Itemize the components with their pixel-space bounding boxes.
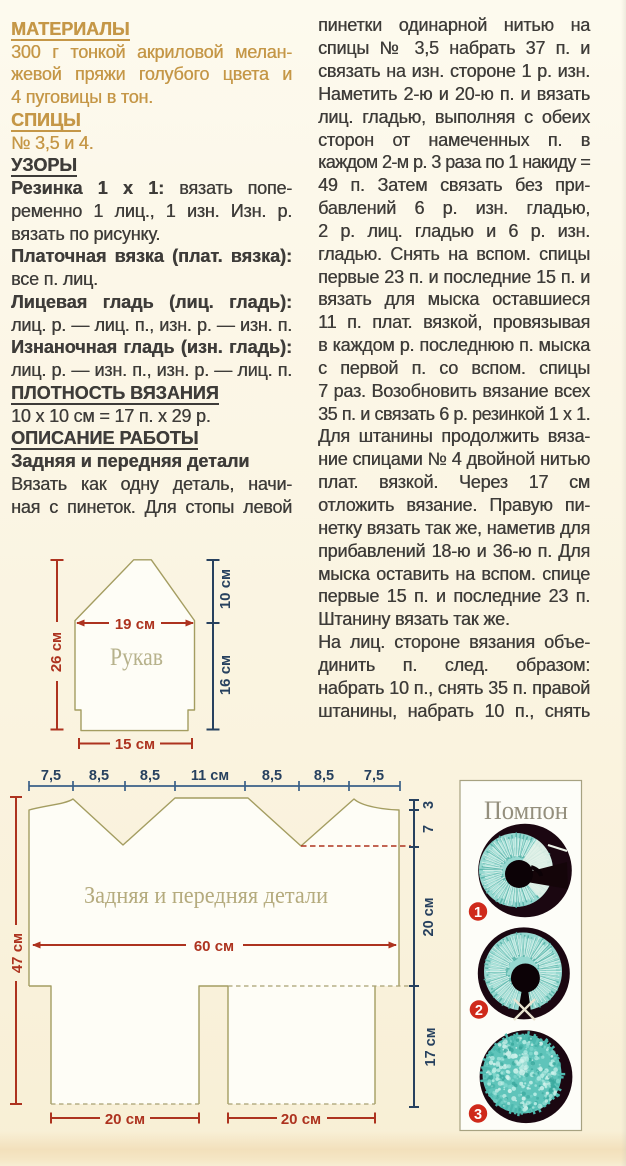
svg-text:19 см: 19 см: [115, 616, 155, 633]
svg-text:20 см: 20 см: [421, 898, 437, 937]
svg-text:2: 2: [475, 1003, 483, 1019]
svg-text:8,5: 8,5: [314, 768, 334, 784]
svg-text:3: 3: [474, 1107, 482, 1123]
svg-text:20 см: 20 см: [105, 1111, 145, 1128]
svg-text:10 см: 10 см: [217, 569, 234, 609]
svg-text:17 см: 17 см: [423, 1028, 439, 1067]
svg-text:16 см: 16 см: [217, 655, 234, 695]
svg-text:Задняя и передняя детали: Задняя и передняя детали: [84, 883, 328, 909]
svg-text:8,5: 8,5: [89, 768, 109, 784]
svg-text:Помпон: Помпон: [484, 796, 568, 825]
svg-text:8,5: 8,5: [140, 768, 160, 784]
svg-text:Рукав: Рукав: [110, 644, 163, 671]
svg-text:26 см: 26 см: [48, 632, 65, 672]
svg-text:1: 1: [474, 905, 482, 921]
svg-text:3: 3: [421, 801, 437, 809]
svg-text:8,5: 8,5: [262, 768, 282, 784]
svg-text:7,5: 7,5: [41, 768, 61, 784]
svg-text:60 см: 60 см: [194, 938, 234, 955]
svg-text:7: 7: [421, 825, 437, 833]
svg-text:15 см: 15 см: [115, 736, 155, 753]
svg-text:20 см: 20 см: [281, 1111, 321, 1128]
svg-text:7,5: 7,5: [364, 768, 384, 784]
svg-text:47 см: 47 см: [9, 933, 26, 973]
svg-text:11 см: 11 см: [191, 768, 229, 784]
